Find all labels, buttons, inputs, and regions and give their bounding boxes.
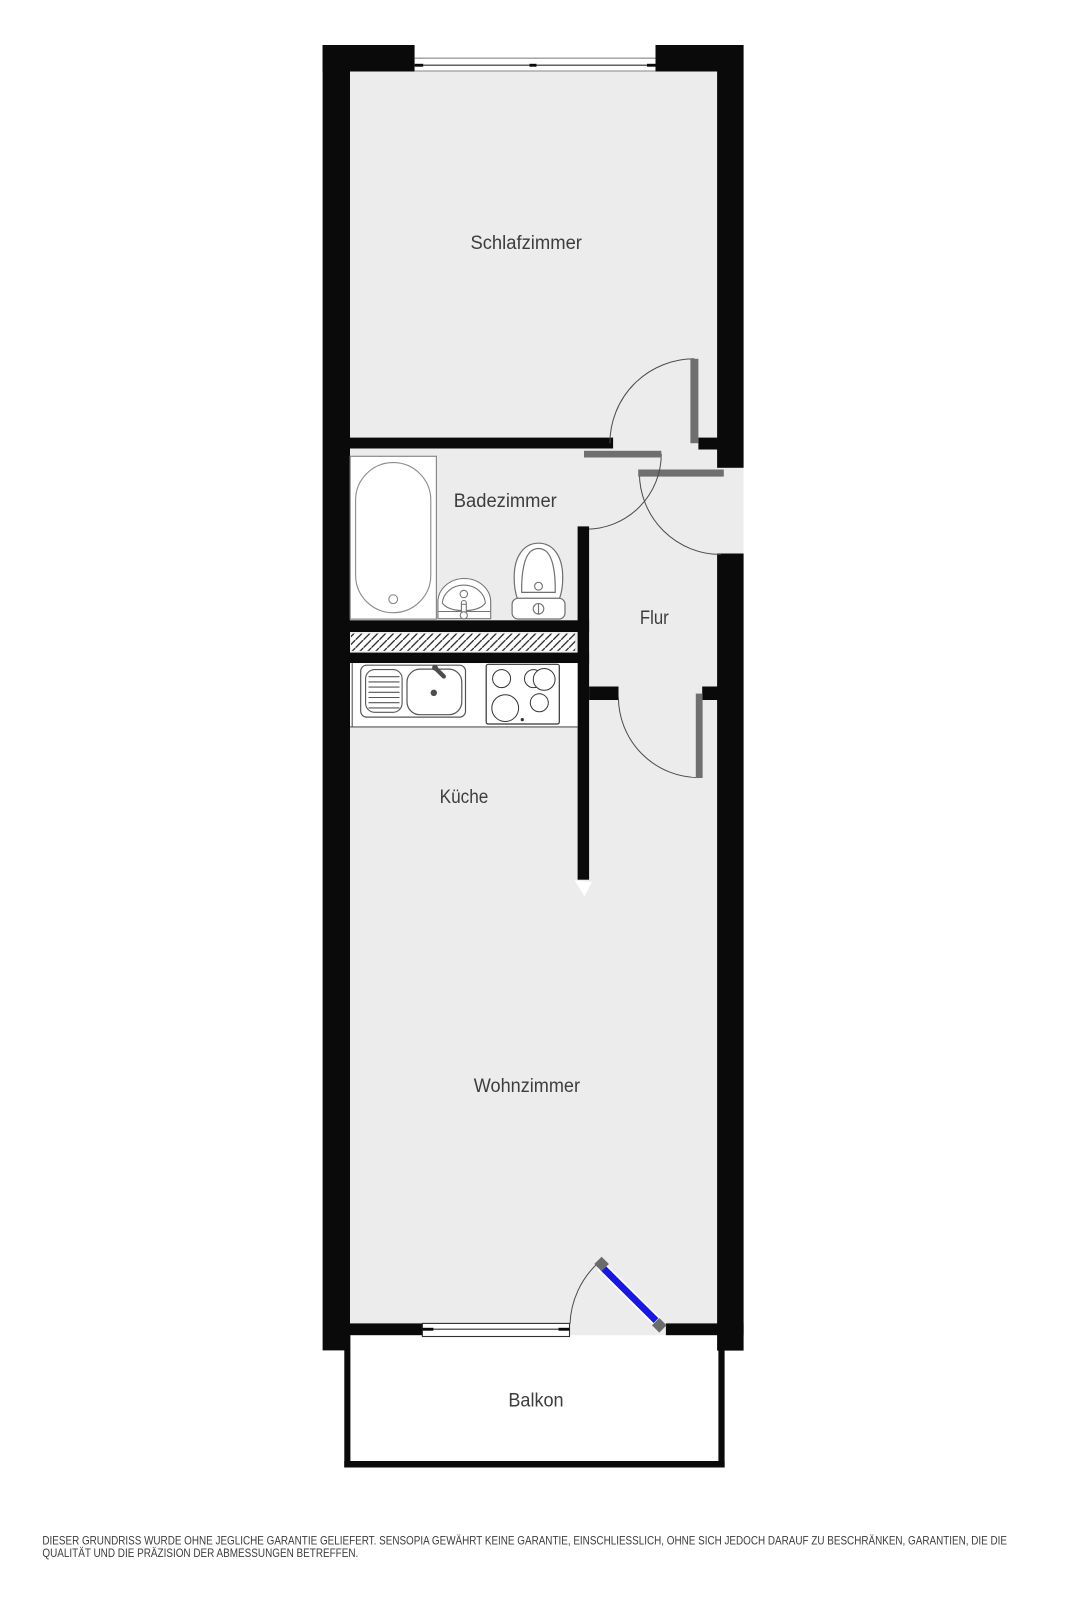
svg-text:QUALITÄT UND DIE PRÄZISION DER: QUALITÄT UND DIE PRÄZISION DER ABMESSUNG… xyxy=(42,1546,358,1560)
svg-text:Wohnzimmer: Wohnzimmer xyxy=(474,1076,581,1097)
svg-text:Badezimmer: Badezimmer xyxy=(454,491,558,512)
svg-text:Schlafzimmer: Schlafzimmer xyxy=(470,233,582,254)
svg-text:Balkon: Balkon xyxy=(508,1391,563,1412)
svg-text:Küche: Küche xyxy=(440,787,489,808)
svg-text:Flur: Flur xyxy=(640,608,669,629)
